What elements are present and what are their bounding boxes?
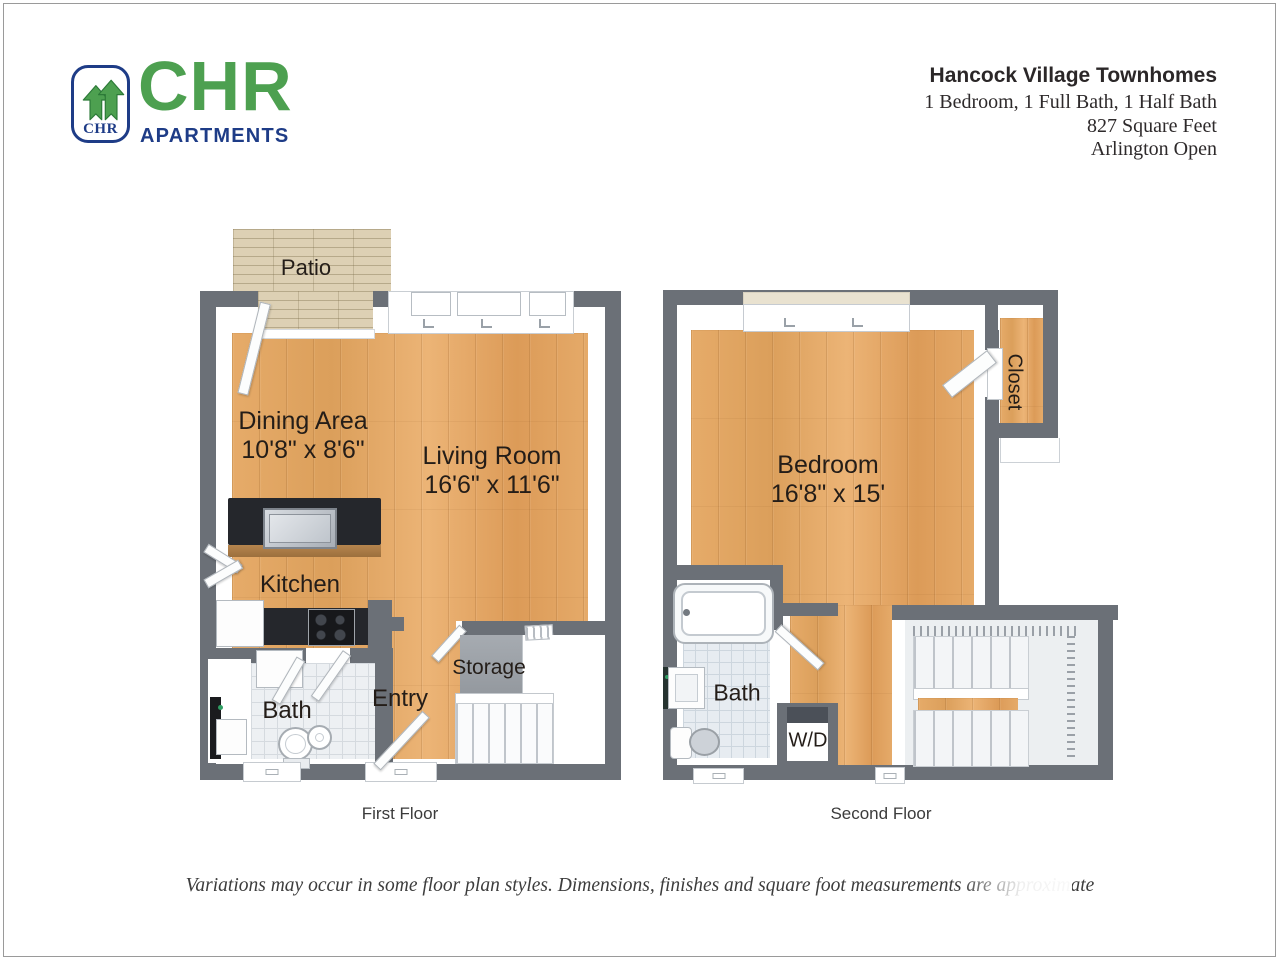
- tub-basin: [681, 591, 766, 636]
- chr-logo-badge: CHR: [71, 65, 130, 143]
- stair-landing: [550, 635, 588, 762]
- washer-dryer-top: [787, 707, 828, 723]
- wall: [985, 397, 999, 423]
- wall: [985, 305, 999, 350]
- window-icon: [411, 292, 451, 316]
- first-floor-plan: Patio Dining Area 10'8" x 8'6" Living Ro…: [200, 229, 621, 780]
- room-label-bath: Bath: [713, 680, 760, 707]
- faucet-icon: [683, 609, 690, 616]
- stair-stringer: [522, 635, 552, 693]
- window-latch-icon: [481, 319, 492, 328]
- plant-icon: [218, 705, 223, 710]
- brand-subtitle: APARTMENTS: [140, 125, 289, 148]
- room-label-bedroom: Bedroom 16'8" x 15': [771, 451, 885, 509]
- wall: [778, 603, 838, 616]
- door-threshold: [875, 767, 905, 784]
- bedroom-dims: 16'8" x 15': [771, 480, 885, 509]
- property-name: Hancock Village Townhomes: [924, 63, 1217, 88]
- window-latch-icon: [423, 319, 434, 328]
- dining-name: Dining Area: [238, 407, 367, 436]
- property-detail: 1 Bedroom, 1 Full Bath, 1 Half Bath: [924, 91, 1217, 115]
- disclaimer-fade-artifact: [960, 869, 1072, 901]
- patio-door-threshold: [258, 329, 375, 339]
- toilet-icon: [689, 728, 720, 756]
- kitchen-sink-icon: [263, 508, 337, 549]
- wall: [985, 423, 1058, 438]
- pedestal-sink-icon: [307, 725, 332, 750]
- wall: [663, 565, 783, 580]
- bath-sink-icon: [668, 667, 705, 709]
- bedroom-name: Bedroom: [771, 451, 885, 480]
- stove-icon: [308, 609, 355, 646]
- window-icon: [743, 304, 910, 332]
- room-label-storage: Storage: [452, 656, 526, 680]
- first-floor-caption: First Floor: [362, 804, 439, 824]
- window-icon: [457, 292, 521, 316]
- staircase-icon: [455, 703, 554, 764]
- wall: [1043, 290, 1058, 438]
- washer-icon: [216, 719, 247, 755]
- wall: [1098, 605, 1113, 780]
- wall: [985, 438, 999, 605]
- wall: [892, 605, 1118, 620]
- living-dims: 16'6" x 11'6": [423, 471, 562, 500]
- property-detail: Arlington Open: [924, 138, 1217, 162]
- sink-basin: [269, 514, 331, 543]
- living-name: Living Room: [423, 442, 562, 471]
- bathtub-icon: [673, 583, 774, 644]
- window-latch-icon: [539, 319, 550, 328]
- floor-plan-sheet: CHR CHR APARTMENTS Hancock Village Townh…: [0, 0, 1279, 960]
- dining-dims: 10'8" x 8'6": [238, 436, 367, 465]
- wall: [605, 291, 621, 780]
- property-detail: 827 Square Feet: [924, 115, 1217, 139]
- window-icon: [529, 292, 566, 316]
- property-info: Hancock Village Townhomes 1 Bedroom, 1 F…: [924, 63, 1217, 162]
- room-label-laundry: W/D: [789, 730, 828, 753]
- refrigerator-icon: [216, 600, 264, 647]
- room-label-living: Living Room 16'6" x 11'6": [423, 442, 562, 500]
- door-threshold: [243, 762, 301, 782]
- disclaimer-text: Variations may occur in some floor plan …: [186, 875, 1095, 897]
- room-label-closet: Closet: [1003, 354, 1026, 411]
- stair-railing: [913, 626, 1080, 636]
- room-label-dining: Dining Area 10'8" x 8'6": [238, 407, 367, 465]
- logo-monogram: CHR: [74, 121, 127, 138]
- door-threshold: [693, 768, 744, 784]
- second-floor-caption: Second Floor: [830, 804, 931, 824]
- staircase-upper-flight: [913, 636, 1029, 690]
- room-label-bath: Bath: [262, 697, 311, 725]
- stair-railing: [1067, 636, 1075, 760]
- second-floor-plan: Bedroom 16'8" x 15' Closet Bath W/D: [663, 290, 1118, 780]
- staircase-lower-flight: [913, 710, 1029, 767]
- window-latch-icon: [784, 318, 795, 327]
- stairwell-opening: [918, 698, 1018, 710]
- room-label-patio: Patio: [281, 255, 331, 281]
- window-latch-icon: [852, 318, 863, 327]
- wall: [392, 617, 404, 631]
- room-label-kitchen: Kitchen: [260, 571, 340, 599]
- roof-ledge: [1000, 438, 1060, 463]
- room-label-entry: Entry: [372, 685, 428, 713]
- brand-name: CHR: [138, 51, 293, 121]
